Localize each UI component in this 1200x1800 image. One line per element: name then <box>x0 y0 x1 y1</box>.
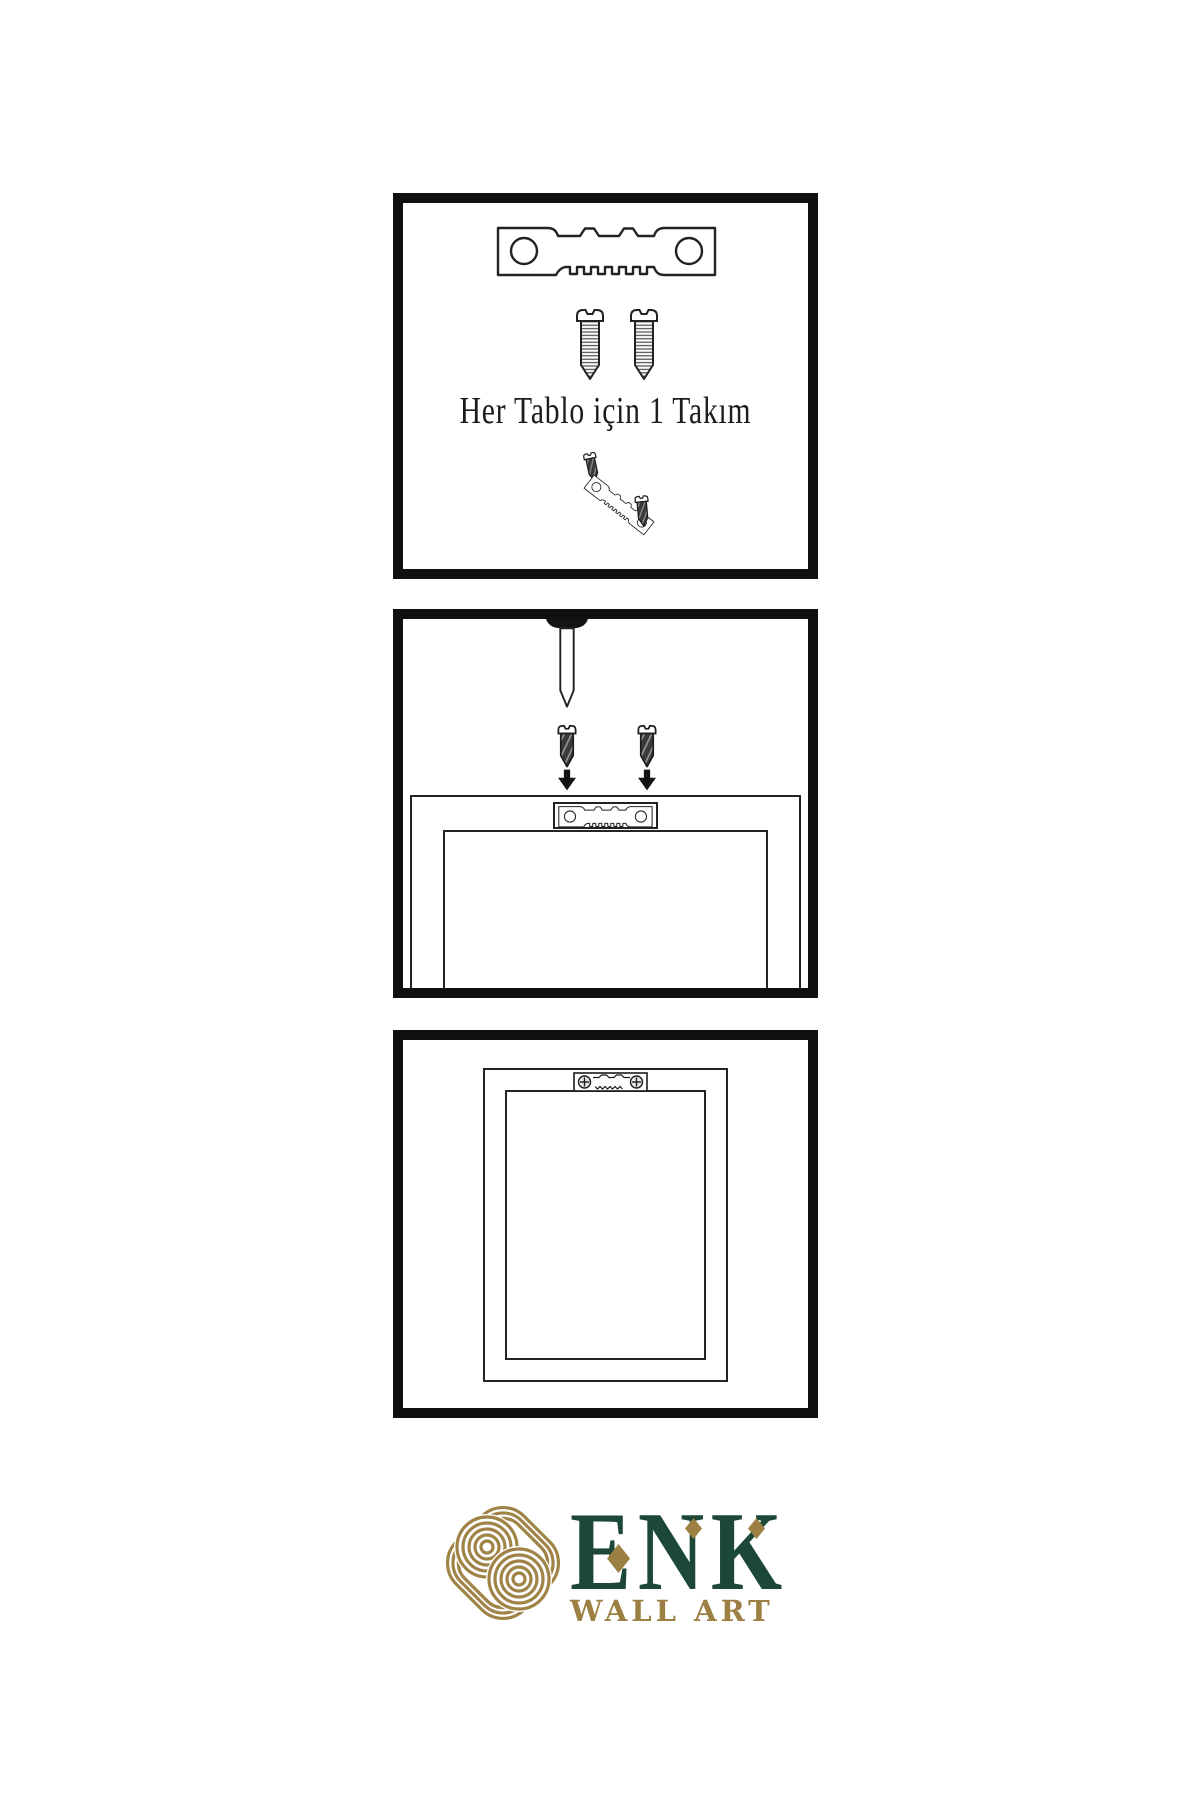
mounted-hanger-icon <box>573 1072 648 1092</box>
hanging-frame-inner <box>505 1090 706 1360</box>
screw-icon <box>573 307 607 381</box>
brand-name: ENK <box>570 1496 789 1608</box>
wall-nail-icon <box>545 618 589 715</box>
sawtooth-hanger-icon <box>495 223 718 280</box>
knot-logo-icon <box>438 1498 568 1628</box>
screw-icon <box>627 307 661 381</box>
stage: Her Tablo için 1 Takım <box>0 0 1200 1800</box>
kit-caption: Her Tablo için 1 Takım <box>448 389 764 433</box>
frame-inner-outline <box>443 830 768 988</box>
install-instructions-page: { "instructions": { "step1_caption": "He… <box>0 0 1200 1800</box>
step1-panel: Her Tablo için 1 Takım <box>393 193 818 579</box>
hanger-plate-icon <box>553 802 658 829</box>
brand-subtitle: WALL ART <box>570 1597 774 1626</box>
down-arrow-icon <box>638 769 656 791</box>
dark-screw-icon <box>635 723 659 769</box>
dark-screw-icon <box>633 493 653 528</box>
down-arrow-icon <box>558 769 576 791</box>
step2-panel <box>393 609 818 998</box>
step3-panel <box>393 1030 818 1418</box>
dark-screw-icon <box>555 723 579 769</box>
